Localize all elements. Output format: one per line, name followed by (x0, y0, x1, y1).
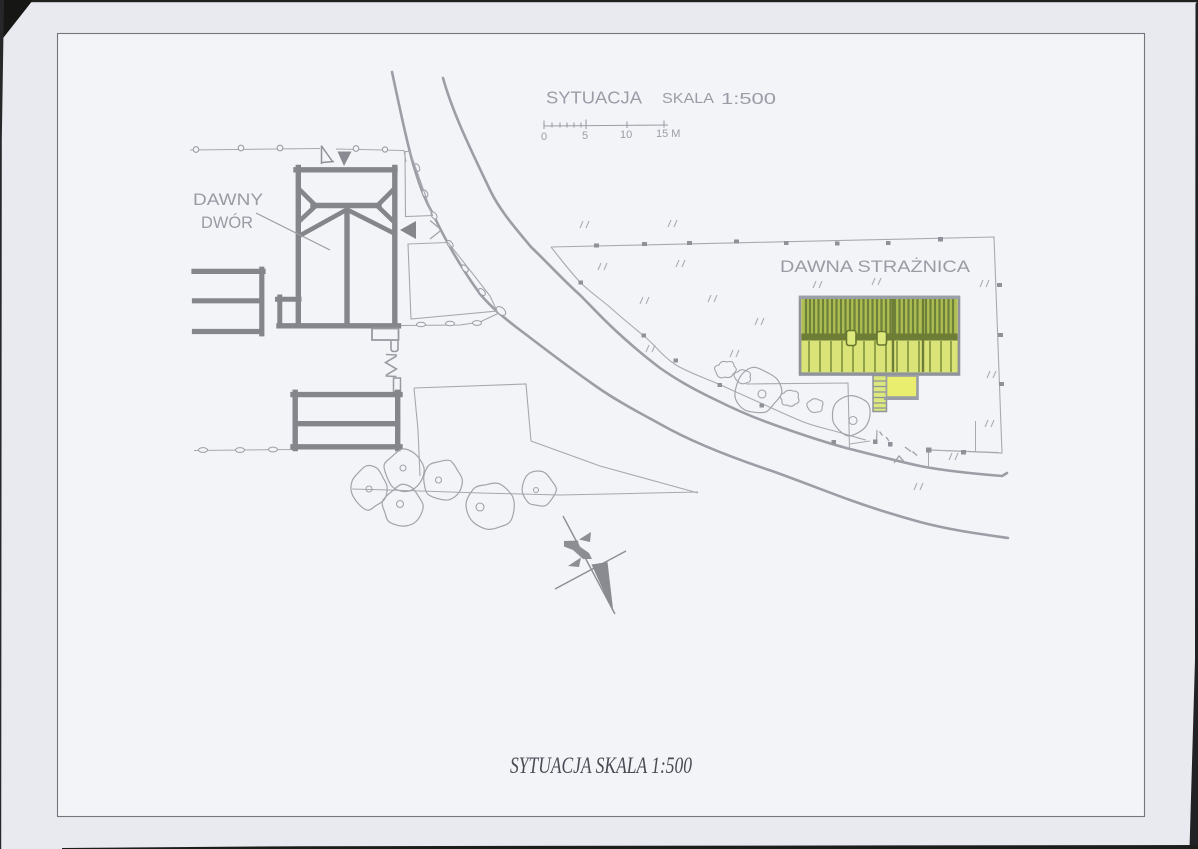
svg-text:15 M: 15 M (656, 128, 680, 140)
svg-text:SYTUACJA SKALA 1:500: SYTUACJA SKALA 1:500 (510, 753, 692, 779)
svg-text:SKALA: SKALA (662, 90, 714, 107)
svg-text:DAWNY: DAWNY (193, 190, 263, 209)
svg-text:SYTUACJA: SYTUACJA (546, 88, 642, 108)
svg-text:DAWNA STRAŻNICA: DAWNA STRAŻNICA (780, 257, 971, 276)
svg-text:1:500: 1:500 (721, 91, 777, 108)
svg-text:5: 5 (582, 130, 588, 142)
svg-text:0: 0 (541, 131, 547, 143)
svg-text:DWÓR: DWÓR (201, 213, 253, 232)
svg-text:10: 10 (620, 129, 632, 141)
